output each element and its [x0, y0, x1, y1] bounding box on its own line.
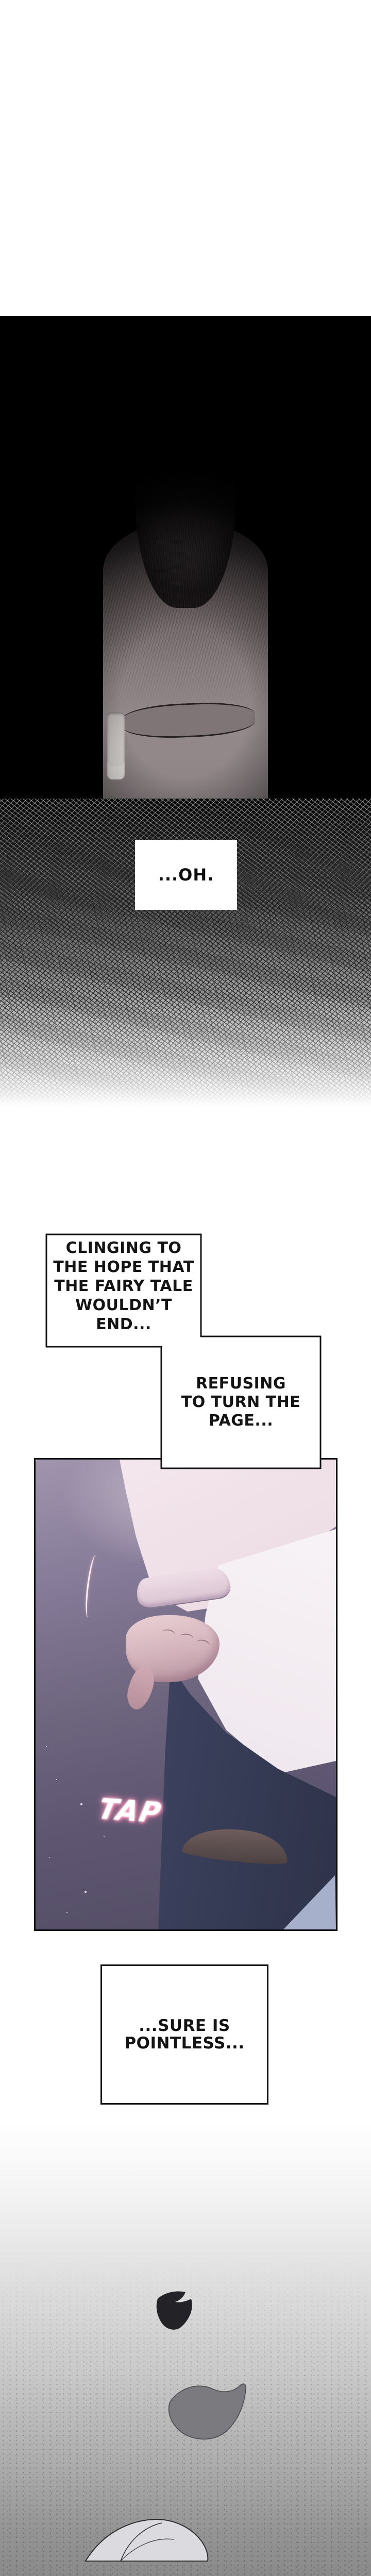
narration-boxes-outline — [0, 1185, 371, 1494]
color-panel: TAP — [34, 1458, 338, 1931]
narration-line: THE HOPE THAT — [46, 1258, 201, 1277]
narration-pointless: ...SURE IS POINTLESS... — [100, 1964, 268, 2105]
petal-dark-shape — [157, 2292, 192, 2330]
webtoon-page: ...OH. TAP CLINGING TO THE HOPE THAT THE… — [0, 0, 371, 2576]
paper-light-shape — [86, 2519, 208, 2561]
narration-line: THE FAIRY TALE — [46, 1277, 201, 1296]
narration-line: CLINGING TO — [46, 1239, 201, 1258]
crosshatch-panel: ...OH. — [0, 799, 371, 1121]
narration-line: ...SURE IS — [139, 2017, 230, 2035]
narration-line: REFUSING — [161, 1375, 321, 1393]
speech-text-oh: ...OH. — [158, 865, 214, 885]
dark-panel — [0, 316, 371, 799]
narration-line: WOULDN’T END... — [46, 1296, 201, 1334]
narration-line: TO TURN THE — [161, 1393, 321, 1412]
narration-refusing: REFUSING TO TURN THE PAGE... — [161, 1375, 321, 1430]
speech-box-oh: ...OH. — [135, 840, 237, 910]
narration-clinging: CLINGING TO THE HOPE THAT THE FAIRY TALE… — [46, 1239, 201, 1334]
falling-petals — [0, 2267, 371, 2576]
petal-mid-shape — [169, 2384, 246, 2439]
sfx-tap: TAP — [95, 1792, 189, 1831]
narration-line: POINTLESS... — [124, 2035, 244, 2052]
darkness-vignette — [0, 316, 371, 799]
narration-line: PAGE... — [161, 1412, 321, 1430]
